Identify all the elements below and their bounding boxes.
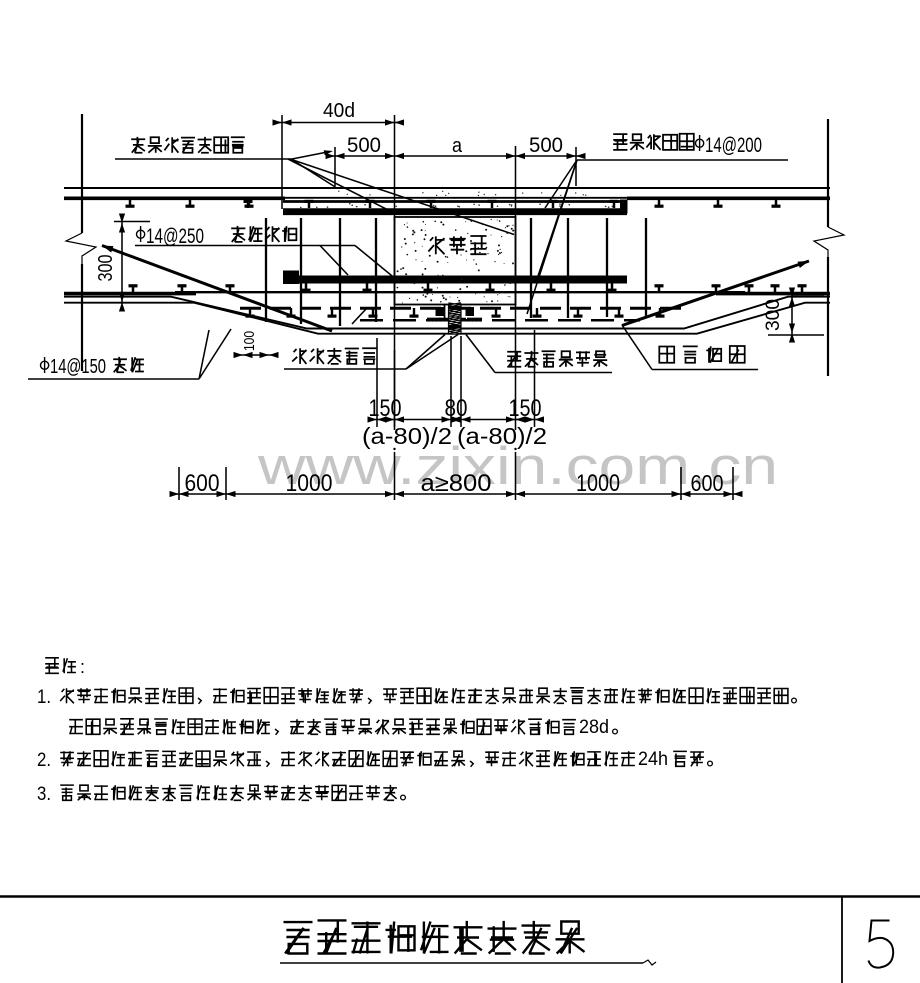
- svg-text:500: 500: [347, 134, 381, 157]
- svg-text:1000: 1000: [286, 470, 333, 497]
- svg-text:300: 300: [95, 255, 117, 282]
- svg-text:a: a: [452, 135, 463, 157]
- svg-text:150: 150: [369, 395, 402, 422]
- svg-text:500: 500: [529, 134, 563, 157]
- svg-text:24h: 24h: [638, 749, 668, 770]
- svg-text:1000: 1000: [576, 470, 620, 497]
- svg-text:100: 100: [241, 331, 258, 351]
- svg-text:3.: 3.: [37, 784, 51, 805]
- svg-text:a≥800: a≥800: [421, 470, 492, 497]
- svg-text:14@250: 14@250: [146, 225, 204, 248]
- svg-text:1.: 1.: [37, 687, 51, 708]
- svg-text:600: 600: [185, 470, 220, 497]
- svg-text:14@150: 14@150: [50, 356, 106, 378]
- svg-text:600: 600: [691, 470, 724, 496]
- svg-text:2.: 2.: [37, 750, 51, 771]
- svg-text:(a-80)/2: (a-80)/2: [457, 423, 547, 449]
- svg-text::: :: [80, 657, 85, 677]
- svg-text:300: 300: [763, 299, 784, 331]
- svg-text:(a-80)/2: (a-80)/2: [362, 423, 452, 449]
- svg-text:28d: 28d: [579, 717, 609, 738]
- svg-text:40d: 40d: [323, 100, 355, 122]
- svg-text:80: 80: [445, 395, 468, 422]
- svg-text:150: 150: [509, 395, 542, 422]
- svg-text:14@200: 14@200: [705, 134, 762, 157]
